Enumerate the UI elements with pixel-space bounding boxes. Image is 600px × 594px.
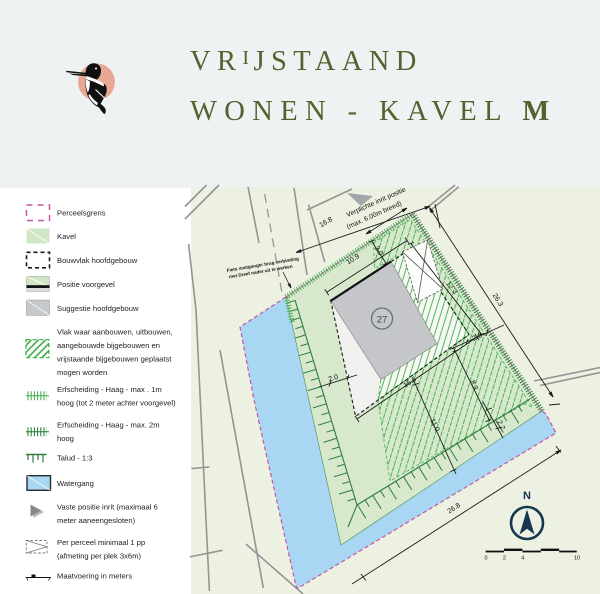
svg-text:Perceelsgrens: Perceelsgrens <box>57 209 106 218</box>
svg-text:vrijstaande bijgebouwen geplaa: vrijstaande bijgebouwen geplaatst <box>57 355 172 364</box>
svg-text:Positie voorgevel: Positie voorgevel <box>57 280 115 289</box>
svg-text:Vlak waar aanbouwen, uitbouwen: Vlak waar aanbouwen, uitbouwen, <box>57 328 173 337</box>
svg-text:Talud - 1:3: Talud - 1:3 <box>57 454 92 463</box>
svg-text:Kavel: Kavel <box>57 232 76 241</box>
svg-text:10: 10 <box>574 556 580 562</box>
svg-text:Watergang: Watergang <box>57 479 94 488</box>
svg-text:VRIJSTAAND: VRIJSTAAND <box>190 46 423 77</box>
svg-text:Erfscheiding - Haag - max . 1m: Erfscheiding - Haag - max . 1m <box>57 385 162 394</box>
svg-text:meter aaneengesloten): meter aaneengesloten) <box>57 516 136 525</box>
svg-text:hoog (tot 2 meter achter voorg: hoog (tot 2 meter achter voorgevel) <box>57 399 176 408</box>
svg-text:mogen worden: mogen worden <box>57 368 107 377</box>
svg-text:4: 4 <box>521 556 524 562</box>
svg-text:hoog: hoog <box>57 434 74 443</box>
svg-text:Per perceel minimaal 1 pp: Per perceel minimaal 1 pp <box>57 538 145 547</box>
svg-text:27: 27 <box>377 315 388 326</box>
svg-text:Bouwvlak hoofdgebouw: Bouwvlak hoofdgebouw <box>57 256 138 265</box>
svg-text:(afmeting per plek 3x6m): (afmeting per plek 3x6m) <box>57 552 141 561</box>
svg-text:Vaste positie inrit (maximaal: Vaste positie inrit (maximaal 6 <box>57 503 158 512</box>
svg-text:Erfscheiding - Haag - max. 2m: Erfscheiding - Haag - max. 2m <box>57 421 160 430</box>
svg-text:0: 0 <box>485 556 488 562</box>
svg-text:2: 2 <box>503 556 506 562</box>
svg-text:WONEN - KAVEL M: WONEN - KAVEL M <box>190 96 557 127</box>
svg-text:Maatvoering in meters: Maatvoering in meters <box>57 572 132 581</box>
svg-text:N: N <box>523 490 531 502</box>
svg-text:aangebouwde bijgebouwen en: aangebouwde bijgebouwen en <box>57 341 160 350</box>
svg-text:Suggestie hoofdgebouw: Suggestie hoofdgebouw <box>57 304 139 313</box>
